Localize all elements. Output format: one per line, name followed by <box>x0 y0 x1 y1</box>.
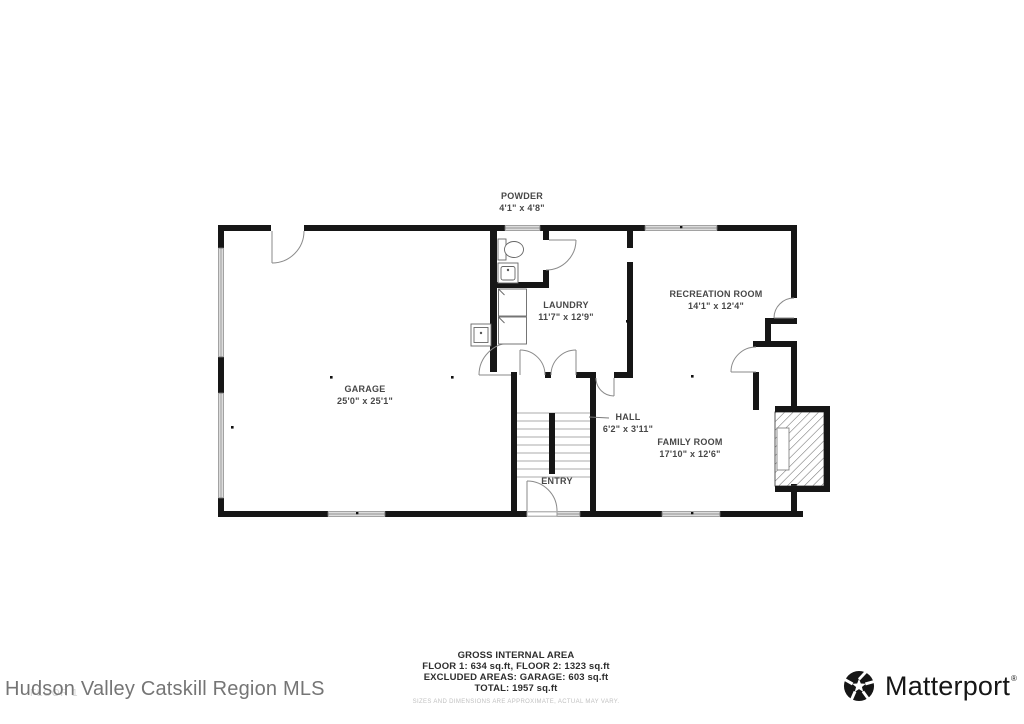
area-summary-floors: FLOOR 1: 634 sq.ft, FLOOR 2: 1323 sq.ft <box>413 661 620 672</box>
matterport-icon <box>842 669 876 703</box>
room-dims: 25'0" x 25'1" <box>337 396 393 408</box>
windows <box>219 226 720 516</box>
area-summary-title: GROSS INTERNAL AREA <box>413 650 620 661</box>
room-dims: 14'1" x 12'4" <box>669 301 762 313</box>
room-label-laundry: LAUNDRY 11'7" x 12'9" <box>538 300 594 323</box>
utility-sink-icon <box>471 324 491 346</box>
room-name: POWDER <box>499 191 545 203</box>
room-name: ENTRY <box>541 476 572 488</box>
room-label-hall: HALL 6'2" x 3'11" <box>603 412 653 435</box>
room-name: HALL <box>603 412 653 424</box>
stairs <box>517 413 590 477</box>
size-disclaimer: SIZES AND DIMENSIONS ARE APPROXIMATE, AC… <box>413 697 620 708</box>
matterport-wordmark: Matterport® <box>885 671 1017 702</box>
room-dims: 6'2" x 3'11" <box>603 424 653 436</box>
floor-plan <box>0 0 1024 724</box>
room-name: RECREATION ROOM <box>669 289 762 301</box>
anchor-dots <box>231 226 694 514</box>
mls-watermark: Hudson Valley Catskill Region MLS <box>5 678 325 701</box>
room-name: GARAGE <box>337 384 393 396</box>
area-summary-total: TOTAL: 1957 sq.ft <box>413 683 620 694</box>
fixtures <box>471 239 527 346</box>
sink-icon <box>498 263 518 283</box>
matterport-logo: Matterport® <box>842 669 1017 703</box>
interior-walls <box>490 225 797 517</box>
washer-dryer-icon <box>499 289 527 344</box>
room-dims: 17'10" x 12'6" <box>657 449 722 461</box>
room-name: FAMILY ROOM <box>657 437 722 449</box>
room-label-garage: GARAGE 25'0" x 25'1" <box>337 384 393 407</box>
room-dims: 4'1" x 4'8" <box>499 203 545 215</box>
fireplace <box>775 406 830 492</box>
area-summary-excluded: EXCLUDED AREAS: GARAGE: 603 sq.ft <box>413 672 620 683</box>
toilet-icon <box>498 239 524 260</box>
room-label-powder: POWDER 4'1" x 4'8" <box>499 191 545 214</box>
area-summary: GROSS INTERNAL AREA FLOOR 1: 634 sq.ft, … <box>413 650 620 708</box>
room-name: LAUNDRY <box>538 300 594 312</box>
room-label-entry: ENTRY <box>541 476 572 488</box>
trademark-symbol: ® <box>1011 674 1017 683</box>
room-dims: 11'7" x 12'9" <box>538 312 594 324</box>
doors <box>272 231 794 516</box>
room-label-recreation-room: RECREATION ROOM 14'1" x 12'4" <box>669 289 762 312</box>
room-label-family-room: FAMILY ROOM 17'10" x 12'6" <box>657 437 722 460</box>
